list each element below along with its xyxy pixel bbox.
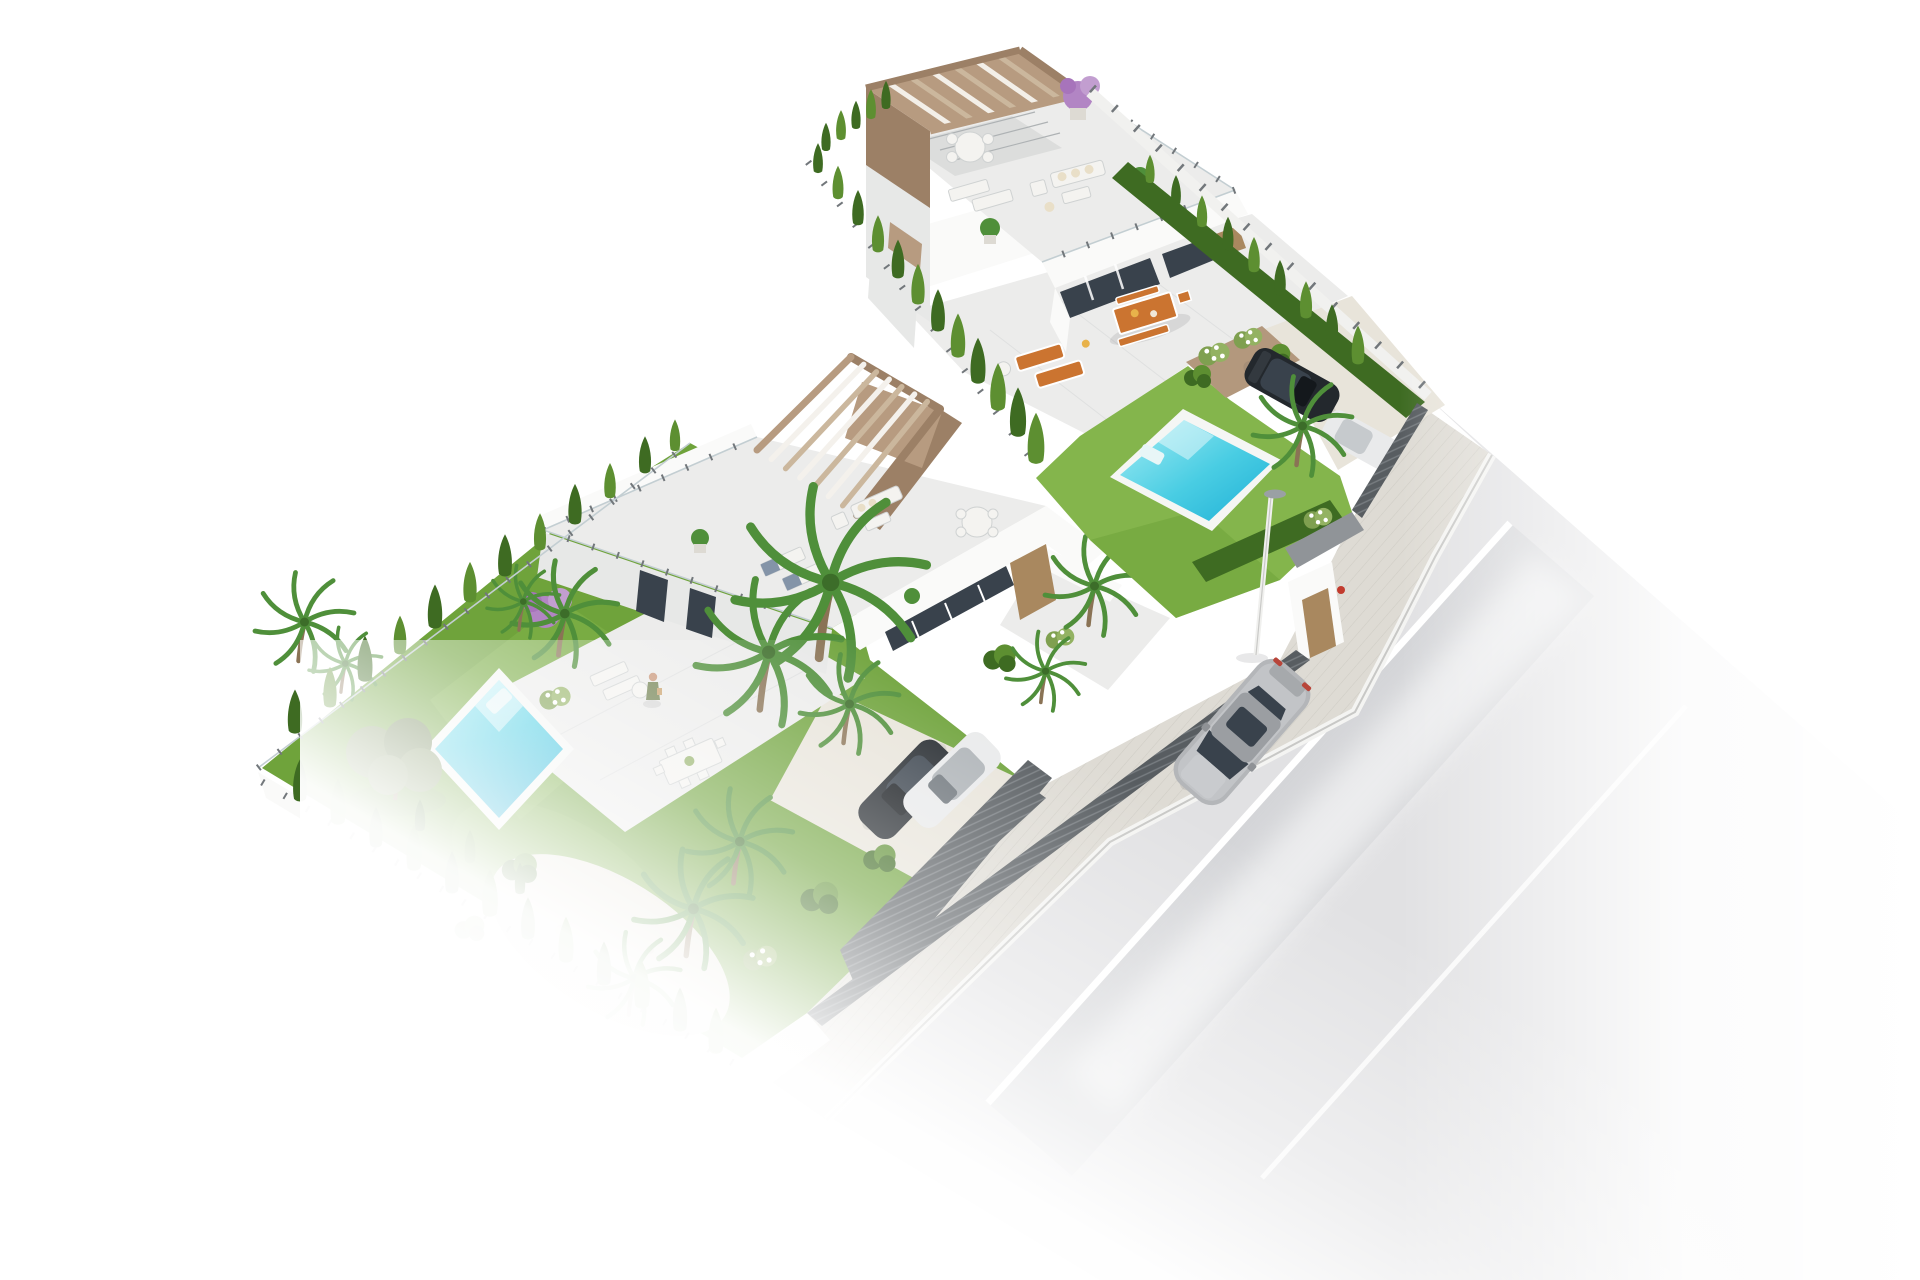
aerial-render [0, 0, 1920, 1280]
render-canvas [0, 0, 1920, 1280]
lower-roof-table [962, 507, 992, 537]
roof-dining-table [955, 132, 985, 162]
intercom [1337, 586, 1345, 594]
